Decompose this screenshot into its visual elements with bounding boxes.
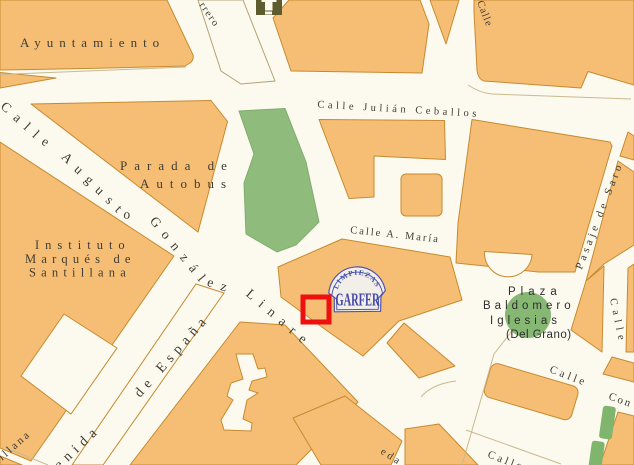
svg-text:GARFER: GARFER: [335, 291, 379, 310]
svg-text:(Del Grano): (Del Grano): [506, 329, 572, 341]
svg-text:Autobus: Autobus: [140, 176, 233, 191]
svg-text:Ayuntamiento: Ayuntamiento: [20, 35, 165, 50]
svg-text:Parada de: Parada de: [120, 158, 234, 173]
svg-text:Iglesias: Iglesias: [490, 315, 561, 327]
svg-text:Santillana: Santillana: [29, 266, 131, 280]
svg-text:Baldomero: Baldomero: [483, 300, 575, 312]
svg-text:Marqués de: Marqués de: [25, 252, 136, 266]
svg-text:Plaza: Plaza: [508, 286, 562, 298]
svg-text:Instituto: Instituto: [35, 238, 131, 252]
